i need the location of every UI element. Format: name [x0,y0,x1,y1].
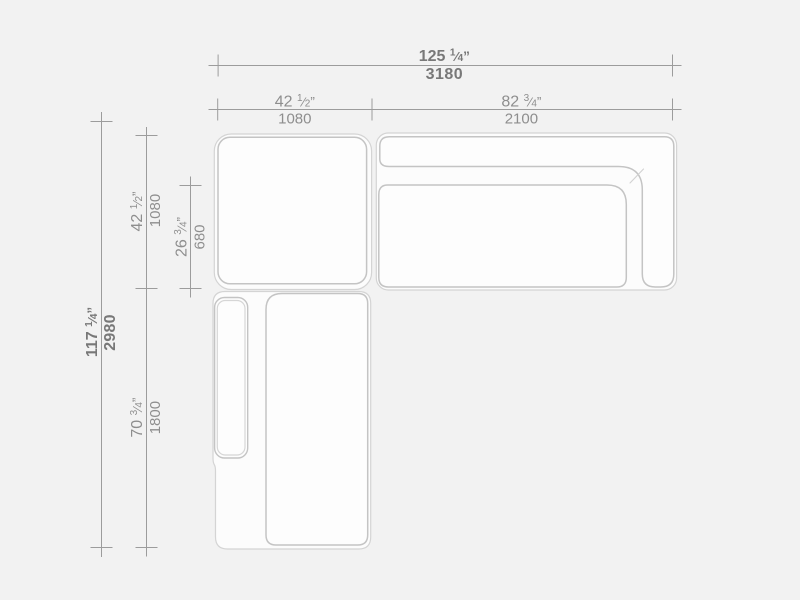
svg-text:1080: 1080 [278,110,311,127]
svg-text:680: 680 [192,224,209,249]
svg-text:1080: 1080 [147,194,164,227]
svg-text:117 1⁄4”: 117 1⁄4” [84,307,101,357]
svg-text:3180: 3180 [426,66,464,83]
svg-text:1800: 1800 [147,401,164,434]
svg-text:125 1⁄4”: 125 1⁄4” [419,48,470,65]
svg-text:2100: 2100 [505,110,538,127]
svg-text:2980: 2980 [102,314,119,350]
